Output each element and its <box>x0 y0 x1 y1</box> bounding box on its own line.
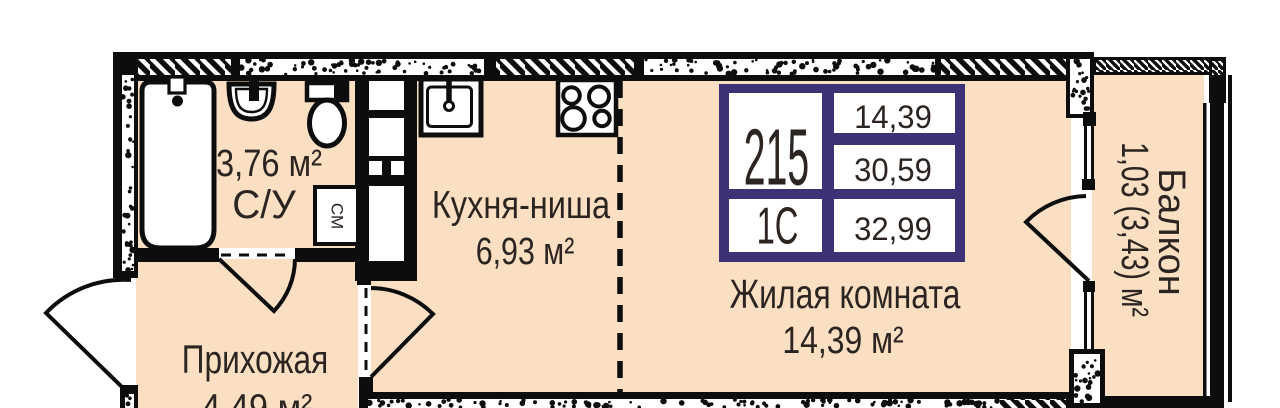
svg-text:1,03 (3,43) м²: 1,03 (3,43) м² <box>1113 142 1155 317</box>
svg-text:4,49 м²: 4,49 м² <box>202 386 313 408</box>
svg-text:30,59: 30,59 <box>854 152 932 189</box>
svg-text:32,99: 32,99 <box>854 211 932 248</box>
svg-text:3,76 м²: 3,76 м² <box>216 142 322 185</box>
svg-text:Балкон: Балкон <box>1150 168 1192 295</box>
svg-text:Жилая комната: Жилая комната <box>730 271 961 317</box>
svg-text:Прихожая: Прихожая <box>182 336 328 381</box>
svg-text:С/У: С/У <box>232 183 296 228</box>
svg-text:215: 215 <box>744 114 809 203</box>
svg-text:1С: 1С <box>757 198 799 255</box>
svg-text:14,39 м²: 14,39 м² <box>782 319 904 361</box>
svg-text:СМ: СМ <box>328 203 347 229</box>
svg-text:6,93 м²: 6,93 м² <box>476 231 575 273</box>
svg-text:Кухня-ниша: Кухня-ниша <box>432 182 610 227</box>
svg-text:14,39: 14,39 <box>854 99 932 136</box>
